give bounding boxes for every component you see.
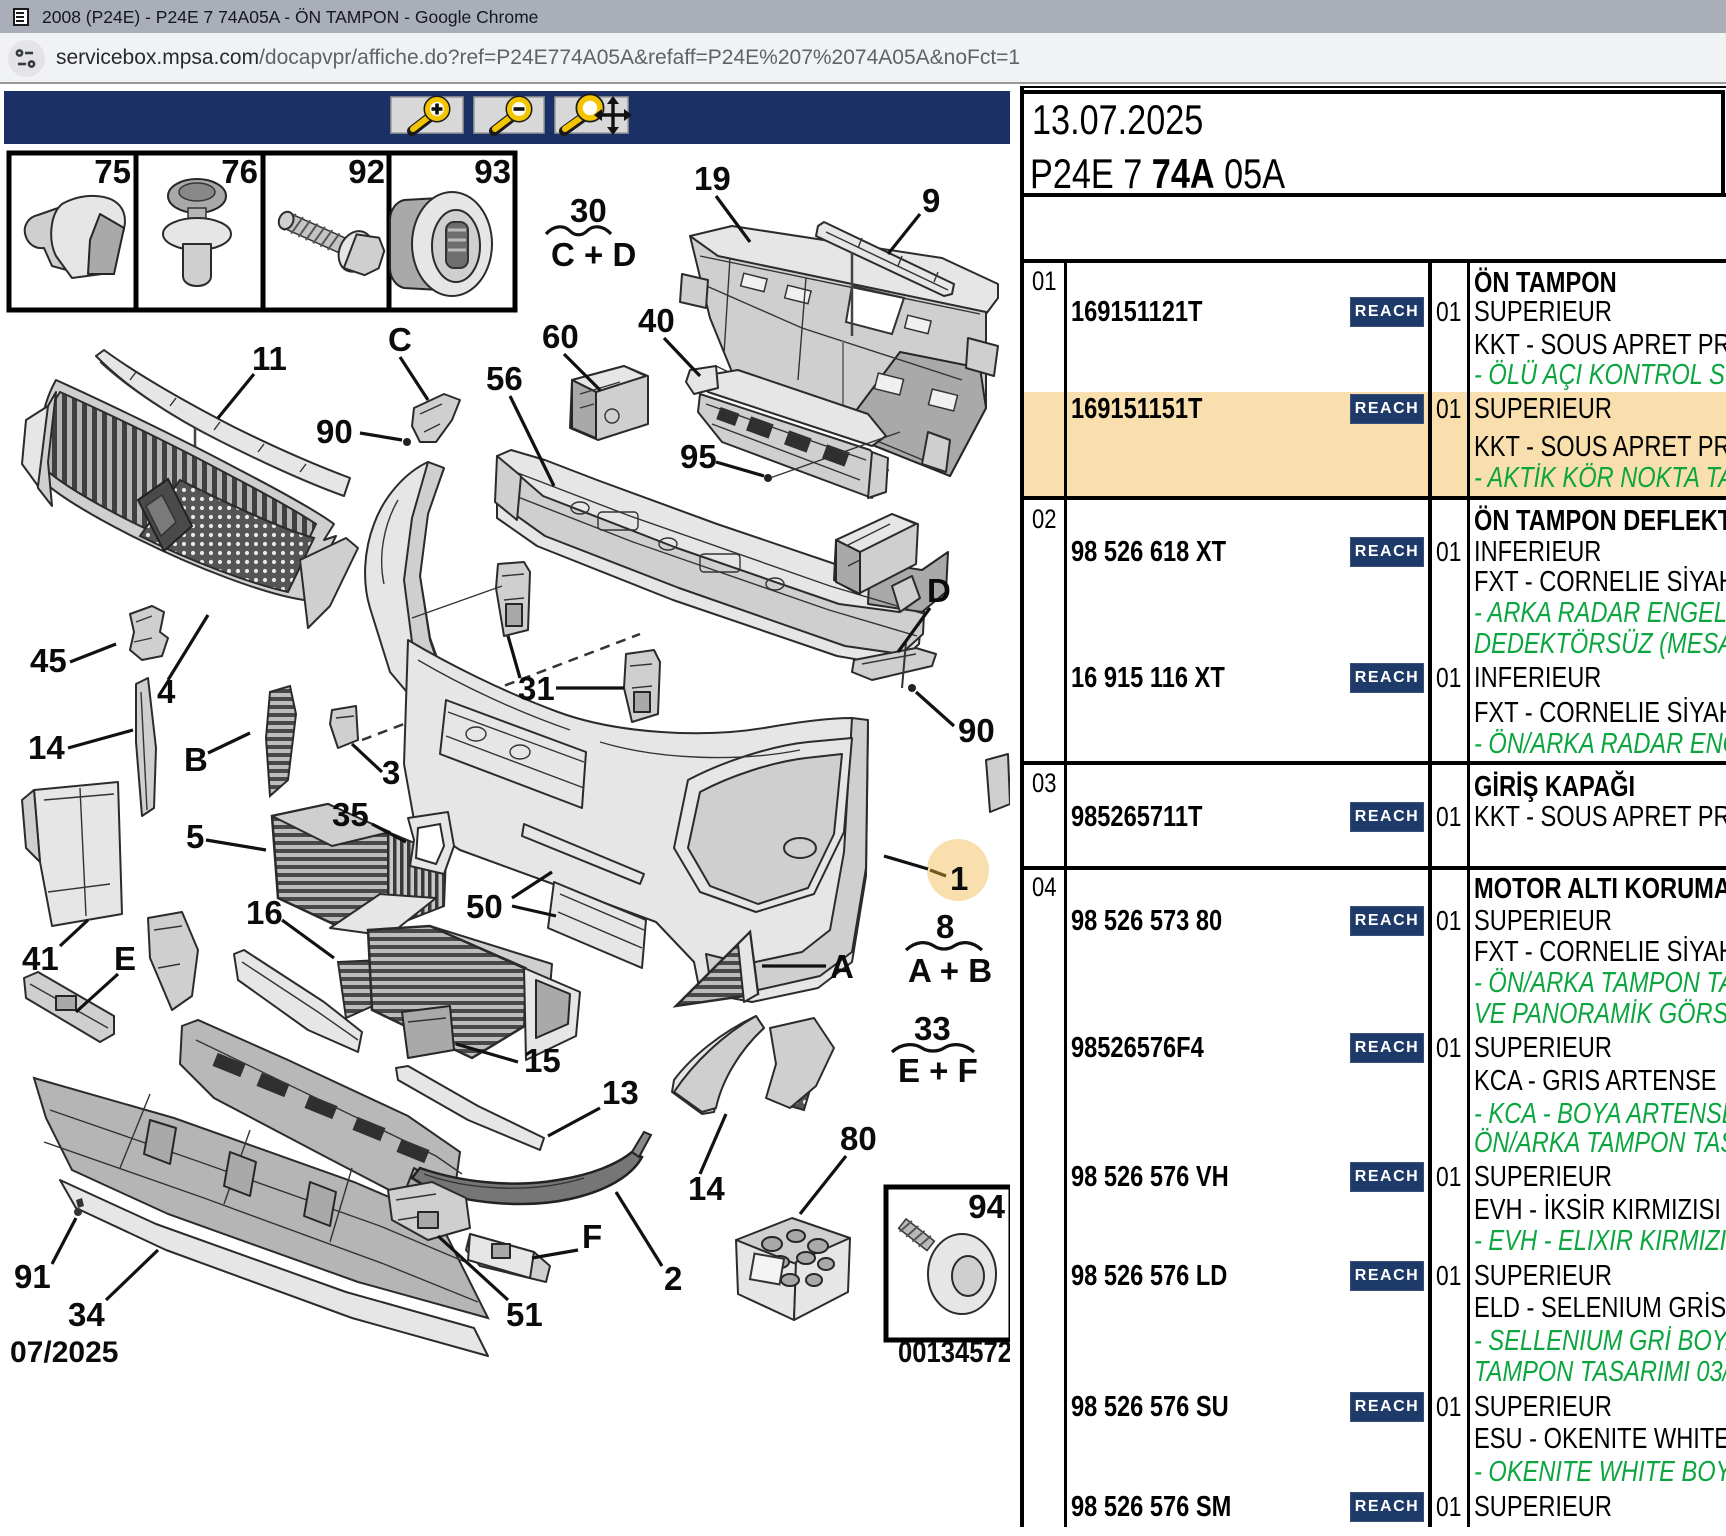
svg-text:3: 3	[382, 754, 400, 791]
svg-text:40: 40	[638, 302, 675, 339]
svg-text:45: 45	[30, 642, 67, 679]
svg-text:1: 1	[950, 860, 968, 897]
svg-text:5: 5	[186, 818, 204, 855]
svg-text:E: E	[114, 940, 136, 977]
svg-text:13: 13	[602, 1074, 639, 1111]
svg-text:16: 16	[246, 894, 283, 931]
svg-text:2: 2	[664, 1260, 682, 1297]
svg-text:33: 33	[914, 1010, 951, 1047]
svg-text:C + D: C + D	[551, 236, 636, 273]
svg-text:90: 90	[316, 413, 353, 450]
svg-text:E + F: E + F	[898, 1052, 978, 1089]
svg-text:8: 8	[936, 908, 954, 945]
svg-text:75: 75	[94, 153, 131, 190]
svg-text:94: 94	[968, 1188, 1005, 1225]
svg-text:76: 76	[221, 153, 258, 190]
svg-text:51: 51	[506, 1296, 543, 1333]
svg-text:90: 90	[958, 712, 995, 749]
svg-text:F: F	[582, 1218, 602, 1255]
svg-text:95: 95	[680, 438, 717, 475]
svg-text:9: 9	[922, 182, 940, 219]
svg-text:4: 4	[157, 673, 176, 710]
svg-text:30: 30	[570, 192, 607, 229]
svg-text:31: 31	[518, 670, 555, 707]
svg-text:50: 50	[466, 888, 503, 925]
svg-text:41: 41	[22, 940, 59, 977]
svg-text:14: 14	[28, 729, 65, 766]
svg-text:35: 35	[332, 796, 369, 833]
svg-text:56: 56	[486, 360, 523, 397]
svg-text:D: D	[927, 572, 951, 609]
svg-text:C: C	[388, 321, 412, 358]
svg-text:60: 60	[542, 318, 579, 355]
svg-text:B: B	[184, 741, 208, 778]
svg-text:A + B: A + B	[908, 952, 992, 989]
svg-text:93: 93	[474, 153, 511, 190]
svg-text:07/2025: 07/2025	[10, 1336, 118, 1369]
svg-text:11: 11	[252, 340, 287, 377]
svg-text:92: 92	[348, 153, 385, 190]
svg-text:34: 34	[68, 1296, 105, 1333]
svg-text:91: 91	[14, 1258, 51, 1295]
svg-text:80: 80	[840, 1120, 877, 1157]
svg-text:19: 19	[694, 160, 731, 197]
svg-text:A: A	[830, 948, 854, 985]
svg-text:14: 14	[688, 1170, 725, 1207]
svg-text:15: 15	[524, 1042, 561, 1079]
svg-text:00134572: 00134572	[898, 1336, 1010, 1369]
